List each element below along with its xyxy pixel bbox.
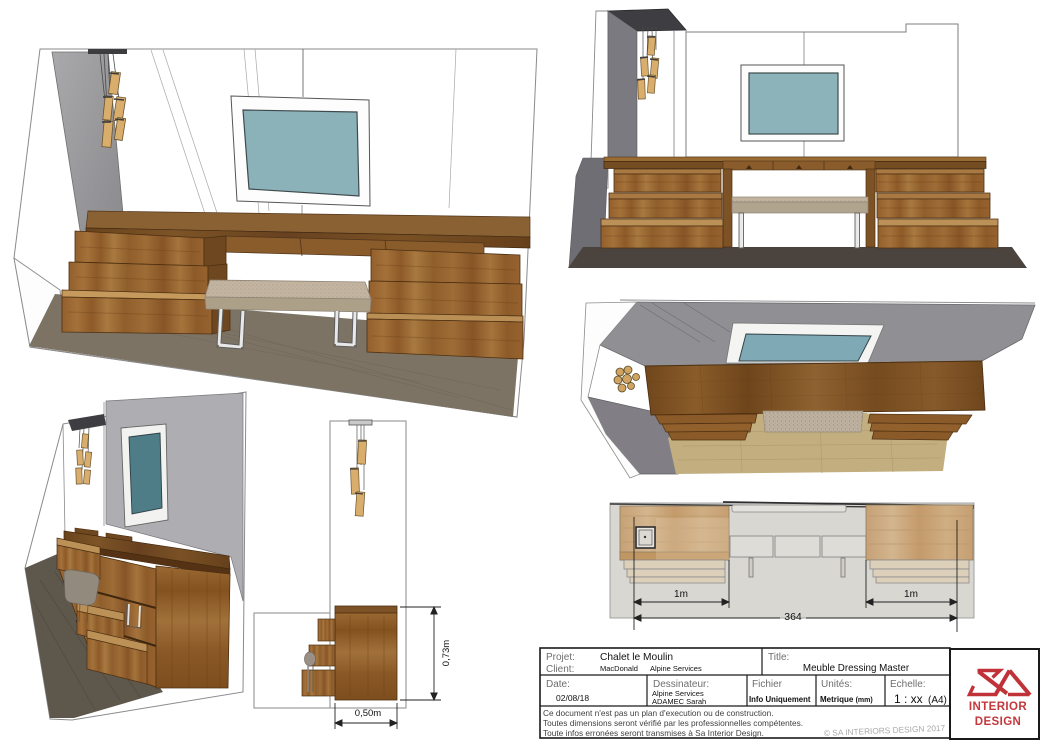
svg-text:Toutes dimensions seront vérif: Toutes dimensions seront vérifié par les… <box>543 718 803 728</box>
svg-text:MacDonald: MacDonald <box>600 664 638 673</box>
svg-text:02/08/18: 02/08/18 <box>556 693 589 703</box>
svg-text:1m: 1m <box>674 589 688 600</box>
svg-text:Unités:: Unités: <box>821 679 852 690</box>
svg-text:Meuble Dressing Master: Meuble Dressing Master <box>803 663 910 674</box>
svg-text:Echelle:: Echelle: <box>890 679 926 690</box>
svg-text:1 : xx: 1 : xx <box>894 692 923 706</box>
svg-text:ADAMEC Sarah: ADAMEC Sarah <box>652 697 706 706</box>
svg-text:DESIGN: DESIGN <box>975 716 1022 728</box>
svg-text:(A4): (A4) <box>928 695 947 706</box>
svg-text:Toute infos erronées seront tr: Toute infos erronées seront transmises à… <box>543 728 764 738</box>
svg-text:0,50m: 0,50m <box>355 708 381 719</box>
svg-text:Metrique (mm): Metrique (mm) <box>820 695 873 704</box>
svg-text:Title:: Title: <box>768 652 789 663</box>
svg-text:1m: 1m <box>904 589 918 600</box>
svg-text:364: 364 <box>784 611 802 623</box>
svg-text:Info Uniquement: Info Uniquement <box>749 695 811 704</box>
svg-text:Alpine Services: Alpine Services <box>650 664 702 673</box>
svg-text:0,73m: 0,73m <box>441 640 452 666</box>
svg-text:INTERIOR: INTERIOR <box>969 701 1027 713</box>
svg-text:Client:: Client: <box>546 664 574 675</box>
svg-text:Chalet le Moulin: Chalet le Moulin <box>600 652 673 663</box>
svg-text:Date:: Date: <box>546 679 570 690</box>
svg-text:Projet:: Projet: <box>546 652 575 663</box>
svg-text:Ce document n'est pas un plan: Ce document n'est pas un plan d'executio… <box>543 708 774 718</box>
svg-text:Fichier: Fichier <box>752 679 783 690</box>
